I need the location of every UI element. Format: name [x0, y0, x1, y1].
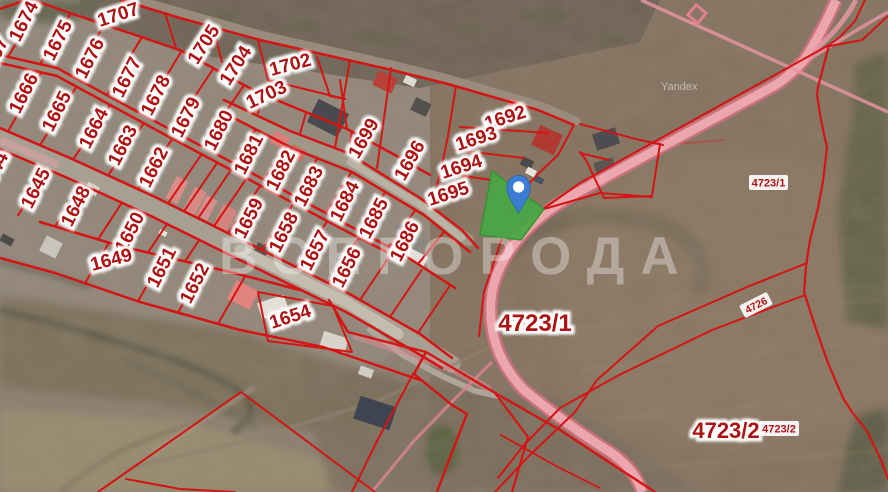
- svg-text:4723/1: 4723/1: [752, 178, 786, 190]
- svg-text:Yandex: Yandex: [661, 81, 698, 93]
- svg-text:4723/2: 4723/2: [762, 424, 796, 436]
- svg-text:4723/2: 4723/2: [692, 418, 759, 443]
- svg-text:4723/1: 4723/1: [498, 310, 571, 337]
